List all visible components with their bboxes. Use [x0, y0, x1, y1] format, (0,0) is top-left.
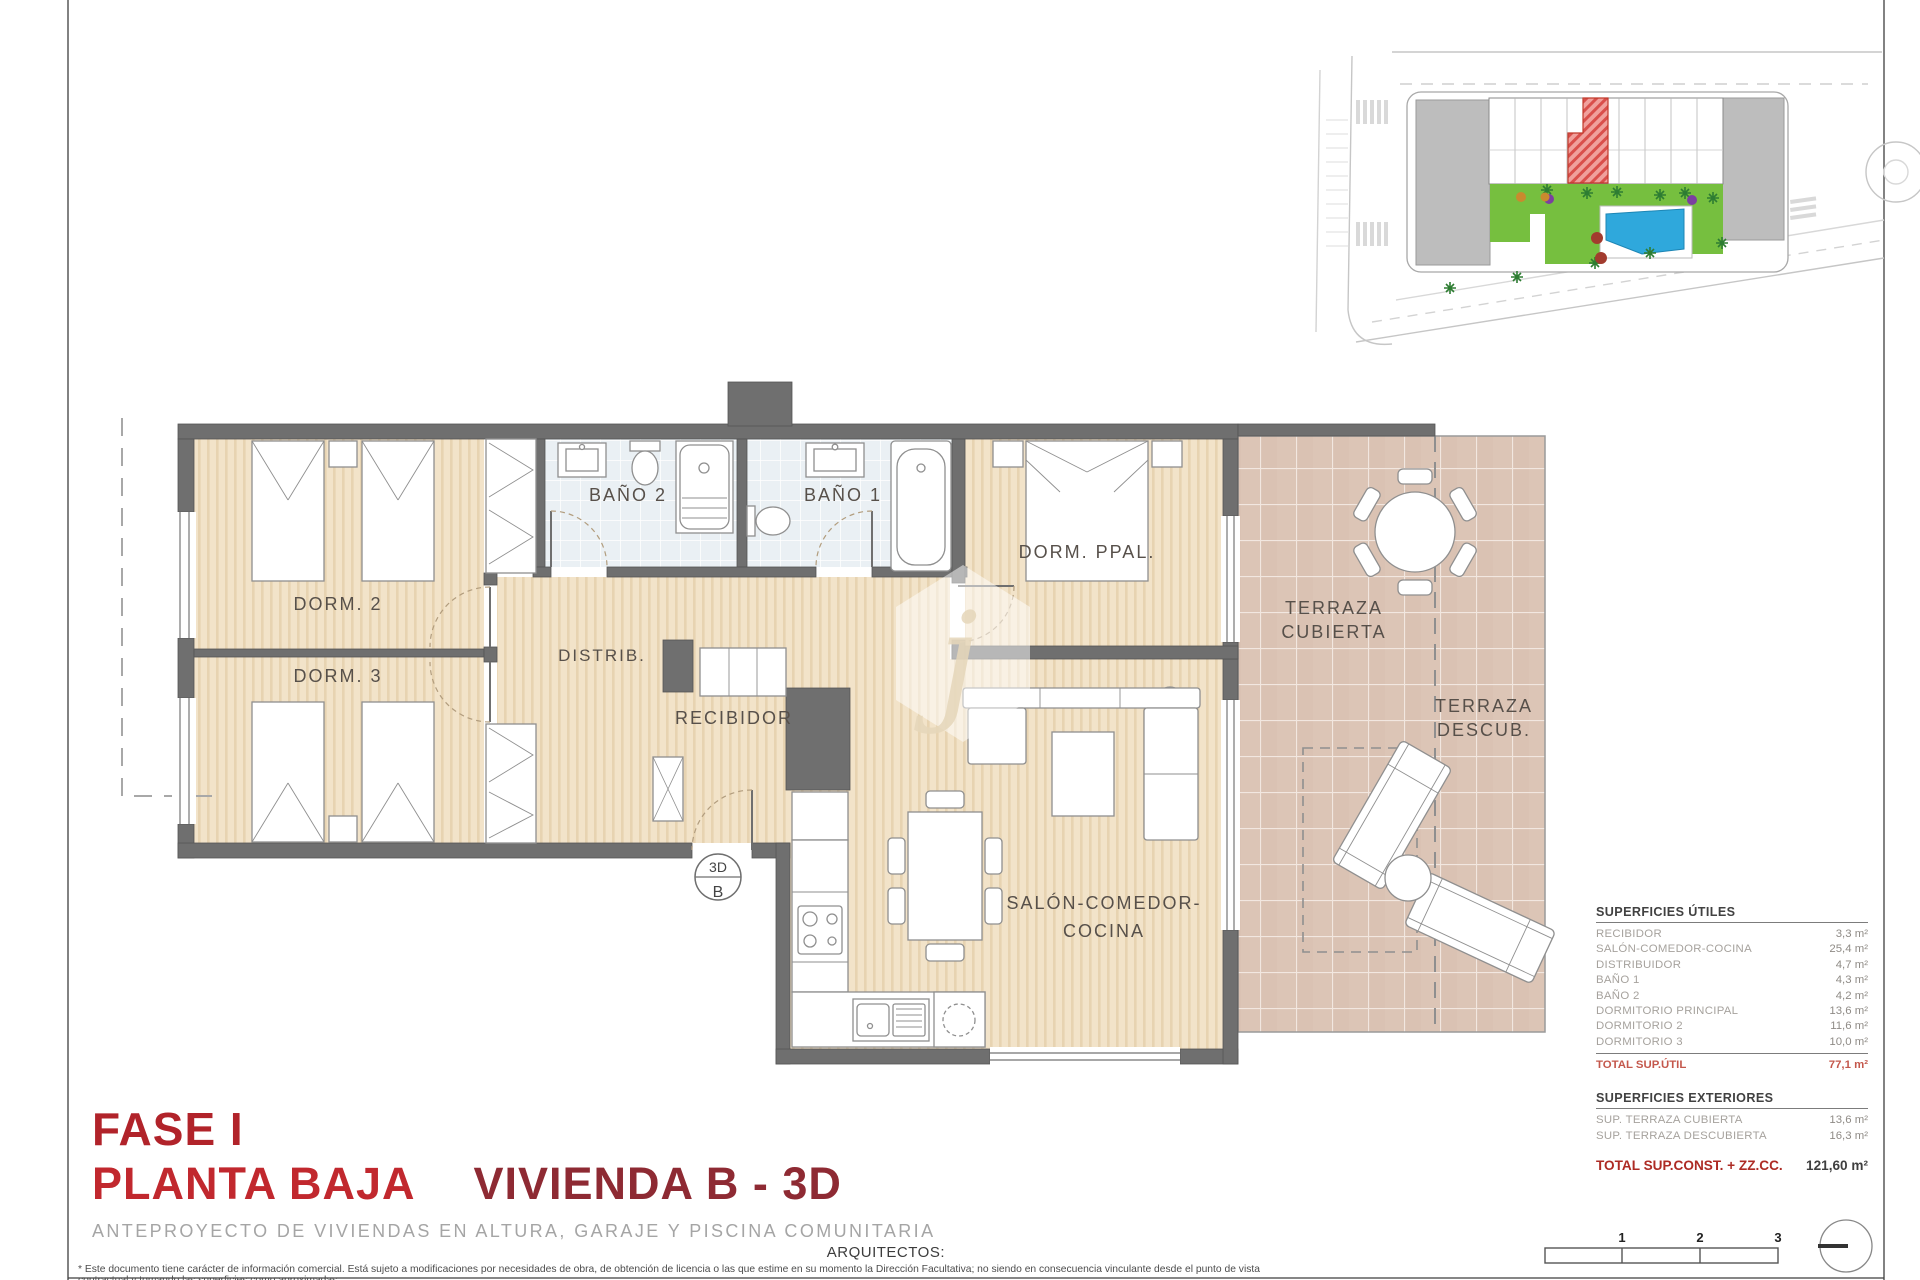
- row-value: 25,4 m²: [1829, 942, 1868, 957]
- row-value: 13,6 m²: [1829, 1113, 1868, 1128]
- title-floor: PLANTA BAJA: [92, 1158, 416, 1209]
- row-label: DORMITORIO PRINCIPAL: [1596, 1004, 1738, 1019]
- row-value: 10,0 m²: [1829, 1035, 1868, 1050]
- floor-dorm2: [193, 439, 484, 651]
- coffee-table-icon: [1052, 732, 1114, 816]
- window-salon-terrace: [1221, 700, 1240, 930]
- utility-block: [786, 688, 850, 790]
- row-value: 11,6 m²: [1830, 1019, 1868, 1034]
- site-plan: [1316, 52, 1920, 344]
- entrance-marker: 3D B: [695, 854, 741, 901]
- toilet-icon: [630, 441, 660, 485]
- row-value: 3,3 m²: [1836, 927, 1868, 942]
- row-label: RECIBIDOR: [1596, 927, 1662, 942]
- row-label: SUP. TERRAZA DESCUBIERTA: [1596, 1129, 1767, 1144]
- total-value: 77,1 m²: [1829, 1057, 1868, 1073]
- label-salon-line2: COCINA: [1063, 921, 1145, 941]
- table-row: SUP. TERRAZA DESCUBIERTA16,3 m²: [1596, 1129, 1868, 1144]
- row-label: DORMITORIO 3: [1596, 1035, 1683, 1050]
- site-building-right: [1722, 98, 1784, 240]
- site-parking-lines: [1326, 120, 1348, 246]
- title-phase: FASE I: [92, 1102, 244, 1156]
- site-pool: [1600, 206, 1692, 258]
- title-line2: PLANTA BAJAVIVIENDA B - 3D: [92, 1158, 842, 1210]
- table-row: BAÑO 14,3 m²: [1596, 973, 1868, 988]
- row-value: 13,6 m²: [1829, 1004, 1868, 1019]
- label-terraza-descub-line2: DESCUB.: [1437, 720, 1531, 740]
- architects-label: ARQUITECTOS:: [645, 1244, 945, 1261]
- table-row: DORMITORIO PRINCIPAL13,6 m²: [1596, 1004, 1868, 1019]
- title-unit: VIVIENDA B - 3D: [474, 1158, 842, 1209]
- window-dorm3: [172, 698, 196, 824]
- kitchen-sink-icon: [853, 999, 929, 1041]
- table-title-utiles: SUPERFICIES ÚTILES: [1596, 905, 1868, 923]
- scale-tick-1: 1: [1618, 1230, 1625, 1245]
- row-value: 16,3 m²: [1829, 1129, 1868, 1144]
- hob-icon: [798, 906, 842, 954]
- site-building-left: [1416, 100, 1490, 265]
- total-const-value: 121,60 m²: [1806, 1158, 1868, 1173]
- row-label: BAÑO 2: [1596, 989, 1640, 1004]
- chimney-stack: [728, 382, 792, 426]
- terrace-side-table-icon: [1385, 855, 1431, 901]
- table-row: DISTRIBUIDOR4,7 m²: [1596, 958, 1868, 973]
- floor-plan: j 3D B DORM. 2 DORM. 3 BAÑO 2 BAÑO 1 DOR…: [122, 382, 1556, 1066]
- toilet-icon: [747, 506, 790, 536]
- pillar: [663, 640, 693, 692]
- row-label: SALÓN-COMEDOR-COCINA: [1596, 942, 1752, 957]
- table-row: SUP. TERRAZA CUBIERTA13,6 m²: [1596, 1113, 1868, 1128]
- row-label: BAÑO 1: [1596, 973, 1640, 988]
- sink-icon: [806, 443, 864, 477]
- label-salon-line1: SALÓN-COMEDOR-: [1006, 892, 1201, 913]
- scale-bar: 1 2 3: [1545, 1230, 1782, 1263]
- scale-tick-2: 2: [1696, 1230, 1703, 1245]
- window-dorm-ppal-terrace: [1221, 516, 1240, 642]
- scale-tick-3: 3: [1774, 1230, 1781, 1245]
- total-const-row: TOTAL SUP.CONST. + ZZ.CC.121,60 m²: [1596, 1158, 1868, 1173]
- label-terraza-descub-line1: TERRAZA: [1435, 696, 1533, 716]
- row-value: 4,7 m²: [1836, 958, 1868, 973]
- window-salon-bottom: [990, 1047, 1180, 1066]
- label-dorm3: DORM. 3: [293, 666, 382, 686]
- label-distrib: DISTRIB.: [558, 646, 646, 665]
- label-bano1: BAÑO 1: [804, 484, 882, 505]
- bathtub-icon: [891, 441, 951, 571]
- table-row: DORMITORIO 211,6 m²: [1596, 1019, 1868, 1034]
- label-terraza-cubierta-line2: CUBIERTA: [1281, 622, 1386, 642]
- shower-icon: [676, 441, 733, 533]
- label-terraza-cubierta-line1: TERRAZA: [1285, 598, 1383, 618]
- row-label: DORMITORIO 2: [1596, 1019, 1683, 1034]
- label-dorm2: DORM. 2: [293, 594, 382, 614]
- entrance-marker-top: 3D: [709, 859, 727, 875]
- total-const-label: TOTAL SUP.CONST. + ZZ.CC.: [1596, 1158, 1783, 1173]
- window-dorm2: [172, 512, 196, 638]
- sink-icon: [558, 443, 606, 477]
- compass-icon: [1818, 1220, 1872, 1272]
- label-recibidor: RECIBIDOR: [675, 708, 793, 728]
- entrance-marker-bottom: B: [713, 884, 724, 901]
- total-label: TOTAL SUP.ÚTIL: [1596, 1057, 1686, 1073]
- project-subtitle: ANTEPROYECTO DE VIVIENDAS EN ALTURA, GAR…: [92, 1221, 936, 1242]
- table-row: RECIBIDOR3,3 m²: [1596, 927, 1868, 942]
- label-bano2: BAÑO 2: [589, 484, 667, 505]
- label-dorm-ppal: DORM. PPAL.: [1019, 542, 1156, 562]
- table-title-exteriores: SUPERFICIES EXTERIORES: [1596, 1091, 1868, 1109]
- table-row: BAÑO 24,2 m²: [1596, 989, 1868, 1004]
- surface-tables: SUPERFICIES ÚTILES RECIBIDOR3,3 m² SALÓN…: [1596, 905, 1868, 1173]
- disclaimer-text: * Este documento tiene carácter de infor…: [78, 1264, 1308, 1280]
- row-value: 4,2 m²: [1836, 989, 1868, 1004]
- plan-sheet: j 3D B DORM. 2 DORM. 3 BAÑO 2 BAÑO 1 DOR…: [0, 0, 1920, 1280]
- washer-icon: [934, 992, 985, 1047]
- row-label: DISTRIBUIDOR: [1596, 958, 1681, 973]
- total-util-row: TOTAL SUP.ÚTIL77,1 m²: [1596, 1053, 1868, 1073]
- row-label: SUP. TERRAZA CUBIERTA: [1596, 1113, 1743, 1128]
- row-value: 4,3 m²: [1836, 973, 1868, 988]
- table-row: SALÓN-COMEDOR-COCINA25,4 m²: [1596, 942, 1868, 957]
- table-row: DORMITORIO 310,0 m²: [1596, 1035, 1868, 1050]
